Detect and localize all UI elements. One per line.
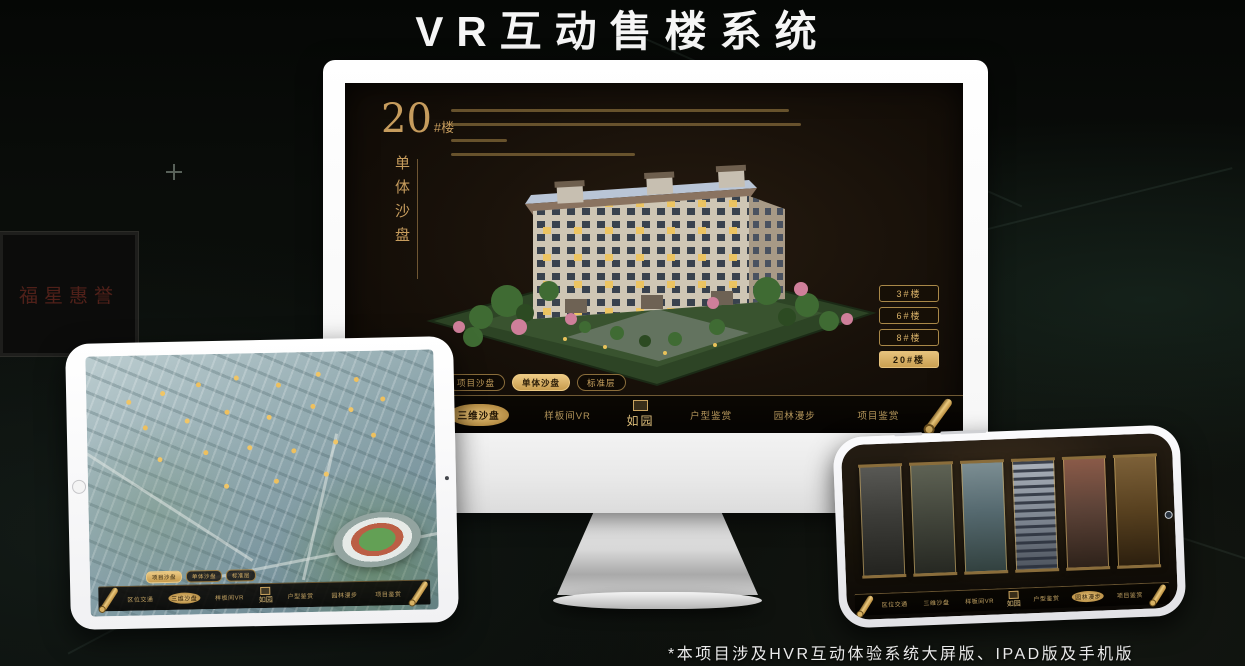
- stadium: [329, 505, 425, 574]
- nav-item-garden-walk[interactable]: 园林漫步: [1072, 590, 1104, 602]
- seal-icon: [261, 587, 271, 595]
- scroll-icon[interactable]: [858, 594, 875, 616]
- nav-item-3d-sandtable[interactable]: 三维沙盘: [168, 592, 200, 604]
- gallery-panel-garden[interactable]: [961, 461, 1007, 573]
- gallery-panel-building[interactable]: [1011, 459, 1057, 571]
- tab-project-sandtable[interactable]: 项目沙盘: [447, 374, 505, 391]
- description-line: [451, 123, 801, 126]
- power-button: [940, 430, 986, 435]
- tablet-nav-bar: 区位交通 三维沙盘 样板间VR 如园 户型鉴赏 园林漫步 项目鉴赏: [98, 580, 430, 612]
- nav-item-project-view[interactable]: 项目鉴赏: [1114, 589, 1146, 601]
- tablet-tab-standard-floor[interactable]: 标准层: [226, 569, 256, 582]
- scroll-icon[interactable]: [925, 397, 954, 432]
- brand-logo: 如园: [627, 400, 655, 429]
- nav-item-garden-walk[interactable]: 园林漫步: [768, 405, 822, 425]
- brand-logo-text: 如园: [627, 412, 655, 429]
- nav-item-showroom-vr[interactable]: 样板间VR: [212, 591, 247, 603]
- volume-button: [894, 432, 922, 436]
- nav-item-floorplan[interactable]: 户型鉴赏: [284, 589, 316, 601]
- building-number: 20: [381, 96, 432, 142]
- home-button[interactable]: [72, 480, 86, 494]
- nav-item-floorplan[interactable]: 户型鉴赏: [684, 405, 738, 425]
- nav-item-showroom-vr[interactable]: 样板间VR: [538, 405, 597, 425]
- scroll-icon[interactable]: [410, 580, 429, 605]
- nav-item-project-view[interactable]: 项目鉴赏: [372, 588, 404, 600]
- nav-item-3d-sandtable[interactable]: 三维沙盘: [920, 596, 952, 608]
- floor-button-20[interactable]: 20#楼: [879, 351, 939, 368]
- gallery-panel-interior[interactable]: [859, 465, 905, 577]
- gallery-panel-autumn[interactable]: [1062, 457, 1108, 569]
- brand-logo-text: 如园: [259, 595, 273, 605]
- nav-item-floorplan[interactable]: 户型鉴赏: [1030, 592, 1062, 604]
- tab-single-sandtable[interactable]: 单体沙盘: [512, 374, 570, 391]
- phone-device: 区位交通 三维沙盘 样板间VR 如园 户型鉴赏 园林漫步 项目鉴赏: [832, 424, 1186, 628]
- footnote: *本项目涉及HVR互动体验系统大屏版、IPAD版及手机版: [668, 640, 1134, 664]
- camera-icon: [445, 476, 449, 480]
- floor-selector: 3#楼 6#楼 8#楼 20#楼: [879, 285, 939, 368]
- background-plaque: 福星惠誉: [0, 232, 138, 356]
- tablet-view-tabs: 项目沙盘 单体沙盘 标准层: [146, 569, 256, 583]
- tab-standard-floor[interactable]: 标准层: [577, 374, 626, 391]
- nav-item-garden-walk[interactable]: 园林漫步: [328, 588, 360, 600]
- floor-button-3[interactable]: 3#楼: [879, 285, 939, 302]
- building-3d-model: [415, 141, 893, 391]
- building-title: 20#楼: [381, 99, 454, 139]
- page-title: VR互动售楼系统: [0, 0, 1245, 56]
- brand-logo-text: 如园: [1007, 598, 1021, 609]
- phone-nav-bar: 区位交通 三维沙盘 样板间VR 如园 户型鉴赏 园林漫步 项目鉴赏: [854, 582, 1170, 616]
- description-line: [451, 109, 789, 112]
- gallery-panel-courtyard[interactable]: [910, 463, 956, 575]
- scroll-icon[interactable]: [100, 587, 119, 612]
- building-markers: [126, 400, 131, 405]
- nav-item-location[interactable]: 区位交通: [124, 593, 156, 605]
- brand-logo: 如园: [1006, 590, 1021, 609]
- building-subtitle: 单体沙盘: [392, 155, 413, 315]
- tablet-tab-project-sandtable[interactable]: 项目沙盘: [146, 571, 182, 584]
- floor-button-6[interactable]: 6#楼: [879, 307, 939, 324]
- brand-logo: 如园: [259, 587, 273, 605]
- tablet-tab-single-sandtable[interactable]: 单体沙盘: [186, 570, 222, 583]
- view-tabs: 项目沙盘 单体沙盘 标准层: [447, 374, 626, 391]
- seal-icon: [633, 400, 648, 411]
- monitor-stand-base: [553, 592, 762, 609]
- aerial-road: [85, 451, 253, 562]
- phone-screen[interactable]: 区位交通 三维沙盘 样板间VR 如园 户型鉴赏 园林漫步 项目鉴赏: [841, 433, 1178, 621]
- compass-icon: [166, 164, 182, 180]
- nav-item-3d-sandtable[interactable]: 三维沙盘: [449, 404, 509, 426]
- nav-item-showroom-vr[interactable]: 样板间VR: [962, 595, 997, 607]
- scroll-icon[interactable]: [1150, 583, 1167, 605]
- gallery-panels: [859, 455, 1160, 576]
- gallery-panel-lounge[interactable]: [1113, 455, 1159, 567]
- nav-item-project-view[interactable]: 项目鉴赏: [851, 405, 905, 425]
- tablet-device: 项目沙盘 单体沙盘 标准层 区位交通 三维沙盘 样板间VR 如园 户型鉴赏 园林…: [65, 336, 459, 630]
- plaque-text: 福星惠誉: [19, 281, 119, 308]
- building-3d-viewport[interactable]: [415, 141, 893, 391]
- nav-item-location[interactable]: 区位交通: [878, 598, 910, 610]
- floor-button-8[interactable]: 8#楼: [879, 329, 939, 346]
- tablet-screen[interactable]: 项目沙盘 单体沙盘 标准层 区位交通 三维沙盘 样板间VR 如园 户型鉴赏 园林…: [85, 349, 438, 616]
